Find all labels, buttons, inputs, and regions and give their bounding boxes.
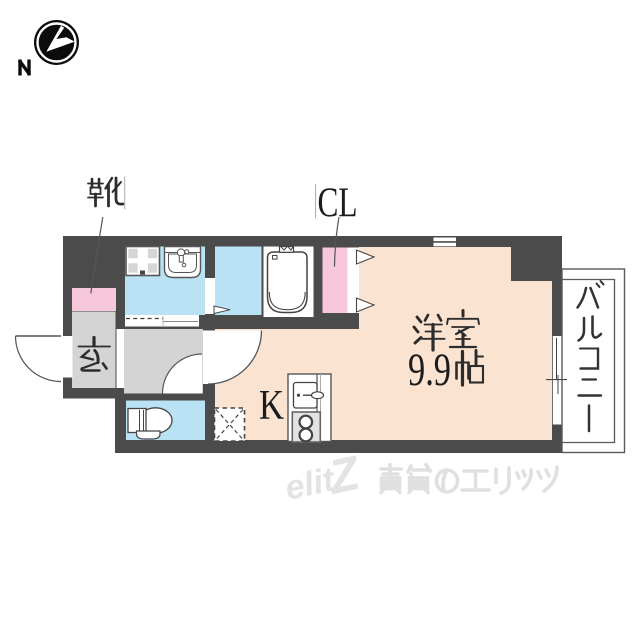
svg-text:CL: CL xyxy=(318,181,358,227)
svg-text:K: K xyxy=(259,383,284,429)
svg-text:9.9: 9.9 xyxy=(408,344,451,396)
